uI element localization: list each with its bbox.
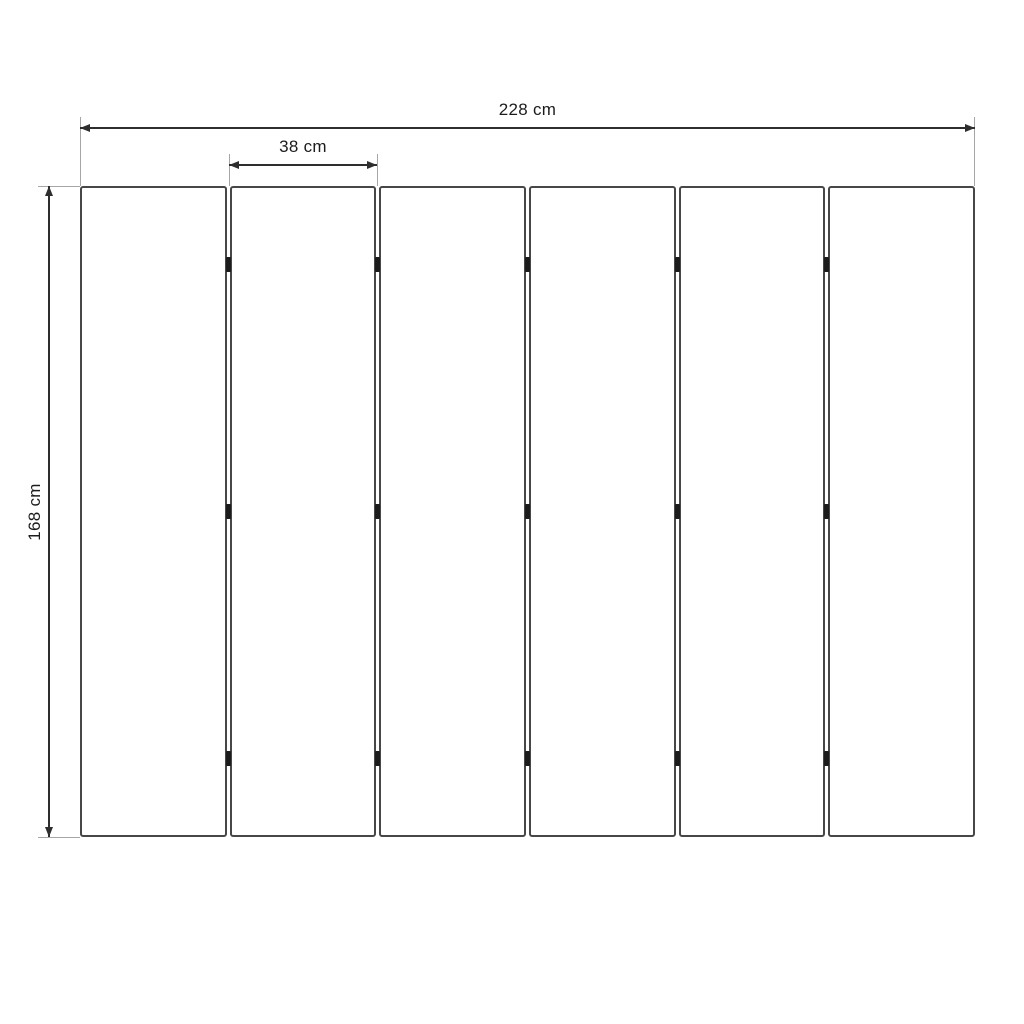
hinge-connector (226, 257, 231, 272)
hinge-connector (525, 751, 530, 766)
diagram-canvas: 228 cm 38 cm 168 cm (0, 0, 1024, 1024)
extension-line-height-bottom (38, 837, 80, 838)
arrowhead-left-icon (229, 161, 239, 169)
screen-panel-1 (80, 186, 227, 837)
hinge-connector (824, 257, 829, 272)
screen-panel-6 (828, 186, 975, 837)
screen-panel-3 (379, 186, 526, 837)
arrowhead-right-icon (367, 161, 377, 169)
screen-panel-5 (679, 186, 826, 837)
extension-line-panel-left (229, 154, 230, 186)
hinge-connector (525, 504, 530, 519)
hinge-connector (375, 751, 380, 766)
panel-width-dimension-line (229, 164, 377, 166)
height-dimension-line (48, 186, 50, 837)
hinge-connector (375, 504, 380, 519)
panel-width-dimension-label: 38 cm (229, 137, 377, 157)
hinge-connector (824, 751, 829, 766)
hinge-connector (675, 751, 680, 766)
height-dimension-label: 168 cm (25, 462, 45, 562)
arrowhead-down-icon (45, 827, 53, 837)
hinge-connector (375, 257, 380, 272)
screen-panel-4 (529, 186, 676, 837)
arrowhead-left-icon (80, 124, 90, 132)
arrowhead-up-icon (45, 186, 53, 196)
screen-panel-2 (230, 186, 377, 837)
extension-line-panel-right (377, 154, 378, 186)
hinge-connector (525, 257, 530, 272)
arrowhead-right-icon (965, 124, 975, 132)
hinge-connector (675, 504, 680, 519)
total-width-dimension-line (80, 127, 975, 129)
hinge-connector (226, 504, 231, 519)
hinge-connector (226, 751, 231, 766)
hinge-connector (824, 504, 829, 519)
hinge-connector (675, 257, 680, 272)
total-width-dimension-label: 228 cm (80, 100, 975, 120)
